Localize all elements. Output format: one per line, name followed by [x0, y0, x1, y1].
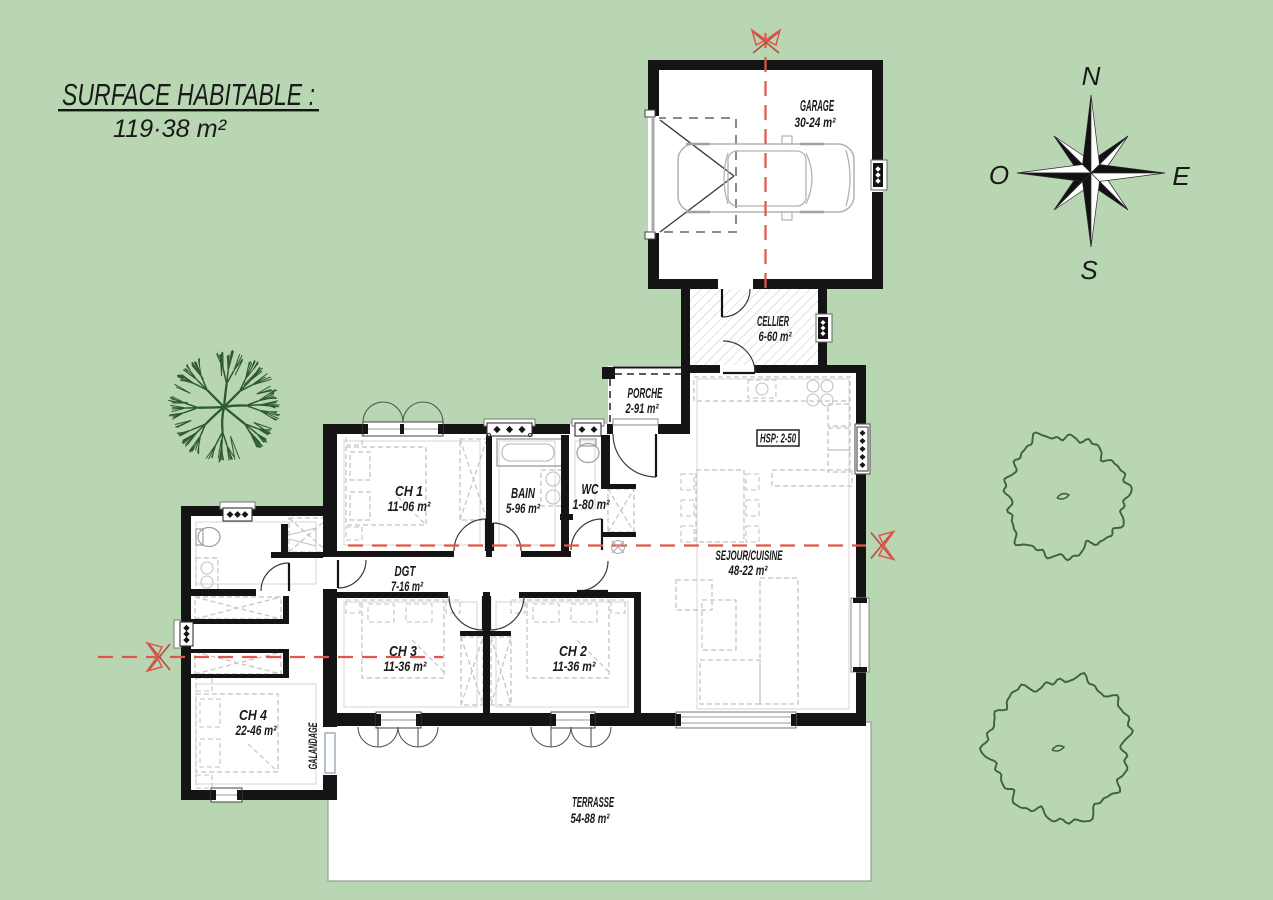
- svg-text:O: O: [989, 160, 1009, 190]
- svg-text:TERRASSE: TERRASSE: [572, 794, 615, 811]
- svg-text:22-46 m²: 22-46 m²: [235, 722, 277, 738]
- svg-text:5-96 m²: 5-96 m²: [506, 500, 540, 516]
- svg-text:HSP: 2-50: HSP: 2-50: [760, 432, 796, 446]
- svg-text:11-06 m²: 11-06 m²: [388, 498, 431, 514]
- svg-text:SURFACE HABITABLE :: SURFACE HABITABLE :: [62, 77, 315, 112]
- svg-text:S: S: [1080, 255, 1098, 285]
- svg-text:11-36 m²: 11-36 m²: [384, 658, 427, 674]
- svg-text:SEJOUR/CUISINE: SEJOUR/CUISINE: [716, 547, 783, 563]
- svg-text:54-88 m²: 54-88 m²: [571, 810, 610, 826]
- svg-text:1-80 m²: 1-80 m²: [573, 496, 610, 512]
- svg-text:119·38 m²: 119·38 m²: [113, 115, 228, 143]
- svg-text:7-16 m²: 7-16 m²: [391, 578, 423, 594]
- svg-text:6-60 m²: 6-60 m²: [759, 328, 792, 344]
- svg-text:30-24 m²: 30-24 m²: [795, 114, 836, 130]
- svg-text:2-91 m²: 2-91 m²: [625, 400, 659, 416]
- svg-text:11-36 m²: 11-36 m²: [553, 658, 596, 674]
- svg-text:E: E: [1172, 161, 1190, 191]
- svg-text:N: N: [1082, 61, 1101, 91]
- svg-text:GALANDAGE: GALANDAGE: [308, 722, 320, 769]
- svg-text:48-22 m²: 48-22 m²: [728, 562, 768, 578]
- svg-text:GARAGE: GARAGE: [800, 98, 834, 115]
